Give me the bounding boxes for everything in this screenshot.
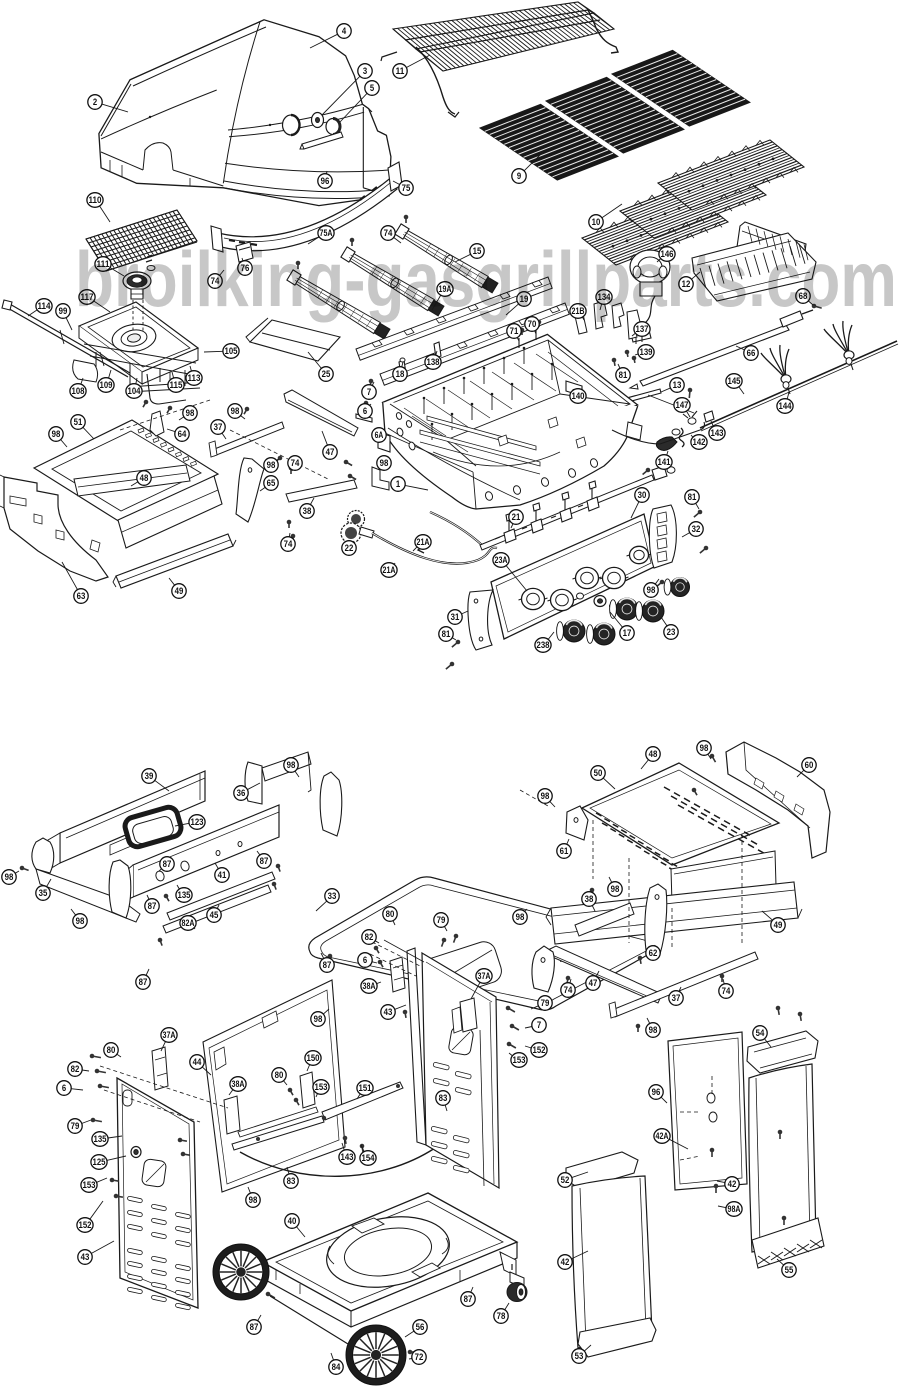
svg-text:1: 1 — [396, 479, 401, 490]
svg-text:64: 64 — [178, 429, 187, 440]
svg-text:74: 74 — [291, 458, 300, 469]
svg-text:21A: 21A — [417, 537, 430, 548]
svg-text:52: 52 — [561, 1175, 570, 1186]
svg-text:47: 47 — [326, 447, 335, 458]
svg-text:114: 114 — [38, 301, 52, 312]
svg-text:9: 9 — [517, 171, 521, 182]
svg-text:5: 5 — [370, 83, 375, 94]
svg-text:74: 74 — [211, 276, 220, 287]
svg-text:11: 11 — [396, 66, 405, 77]
svg-text:63: 63 — [77, 591, 86, 602]
svg-text:104: 104 — [128, 386, 142, 397]
svg-text:76: 76 — [241, 263, 250, 274]
svg-text:98: 98 — [231, 406, 240, 417]
svg-text:98: 98 — [76, 916, 85, 927]
svg-text:87: 87 — [163, 859, 172, 870]
svg-text:61: 61 — [560, 846, 569, 857]
svg-text:113: 113 — [188, 373, 201, 384]
svg-text:87: 87 — [260, 856, 269, 867]
svg-text:98: 98 — [267, 460, 276, 471]
svg-text:153: 153 — [315, 1082, 328, 1093]
svg-text:37A: 37A — [478, 971, 491, 982]
svg-text:17: 17 — [623, 628, 632, 639]
svg-text:4: 4 — [342, 26, 347, 37]
svg-text:79: 79 — [437, 915, 446, 926]
svg-text:143: 143 — [341, 1152, 354, 1163]
svg-text:96: 96 — [652, 1087, 661, 1098]
svg-text:139: 139 — [640, 347, 653, 358]
svg-text:56: 56 — [416, 1322, 425, 1333]
svg-text:138: 138 — [427, 357, 440, 368]
svg-text:98: 98 — [700, 743, 709, 754]
svg-text:98A: 98A — [728, 1204, 741, 1215]
svg-text:19A: 19A — [439, 284, 452, 295]
svg-text:98: 98 — [186, 408, 195, 419]
svg-text:40: 40 — [288, 1216, 297, 1227]
svg-text:54: 54 — [756, 1028, 765, 1039]
svg-text:150: 150 — [307, 1053, 320, 1064]
svg-text:98: 98 — [5, 872, 14, 883]
svg-text:151: 151 — [359, 1083, 373, 1094]
svg-text:141: 141 — [658, 457, 672, 468]
svg-text:33: 33 — [328, 891, 337, 902]
svg-text:30: 30 — [638, 490, 647, 501]
svg-text:115: 115 — [170, 380, 184, 391]
svg-text:152: 152 — [79, 1220, 92, 1231]
svg-text:74: 74 — [722, 986, 731, 997]
svg-text:82: 82 — [71, 1064, 80, 1075]
svg-text:71: 71 — [510, 326, 519, 337]
svg-text:96: 96 — [321, 176, 330, 187]
svg-text:78: 78 — [497, 1311, 506, 1322]
svg-text:6A: 6A — [375, 430, 384, 441]
svg-text:38: 38 — [585, 894, 594, 905]
svg-text:44: 44 — [193, 1057, 202, 1068]
svg-text:45: 45 — [210, 910, 219, 921]
svg-text:37A: 37A — [163, 1030, 176, 1041]
svg-text:70: 70 — [528, 319, 537, 330]
svg-text:111: 111 — [97, 259, 111, 270]
svg-text:146: 146 — [661, 249, 674, 260]
svg-text:65: 65 — [267, 478, 276, 489]
svg-text:74: 74 — [384, 228, 393, 239]
svg-text:51: 51 — [74, 417, 83, 428]
svg-text:22: 22 — [345, 543, 354, 554]
svg-text:153: 153 — [513, 1055, 526, 1066]
svg-text:15: 15 — [473, 246, 482, 257]
svg-text:80: 80 — [107, 1045, 116, 1056]
svg-text:82A: 82A — [182, 918, 195, 929]
svg-text:38: 38 — [303, 506, 312, 517]
svg-text:7: 7 — [537, 1020, 541, 1031]
svg-text:41: 41 — [218, 870, 227, 881]
svg-text:7: 7 — [367, 387, 371, 398]
svg-text:48: 48 — [140, 473, 149, 484]
svg-text:80: 80 — [275, 1070, 284, 1081]
svg-text:108: 108 — [72, 386, 85, 397]
svg-text:98: 98 — [249, 1195, 258, 1206]
svg-text:79: 79 — [541, 998, 550, 1009]
svg-text:55: 55 — [785, 1265, 794, 1276]
svg-text:21: 21 — [512, 512, 521, 523]
svg-text:37: 37 — [672, 993, 681, 1004]
svg-text:87: 87 — [139, 977, 148, 988]
svg-text:152: 152 — [533, 1045, 546, 1056]
svg-text:98: 98 — [314, 1014, 323, 1025]
svg-text:39: 39 — [145, 771, 154, 782]
svg-text:37: 37 — [214, 422, 223, 433]
svg-text:21B: 21B — [572, 306, 585, 317]
svg-text:98: 98 — [516, 912, 525, 923]
svg-text:62: 62 — [649, 948, 658, 959]
svg-text:49: 49 — [175, 586, 184, 597]
svg-text:38A: 38A — [232, 1079, 245, 1090]
svg-text:6: 6 — [62, 1083, 66, 1094]
svg-text:43: 43 — [384, 1007, 393, 1018]
svg-text:84: 84 — [332, 1362, 341, 1373]
svg-text:82: 82 — [365, 932, 374, 943]
svg-text:32: 32 — [692, 524, 701, 535]
svg-text:109: 109 — [100, 380, 113, 391]
svg-text:87: 87 — [323, 960, 332, 971]
svg-text:105: 105 — [225, 346, 239, 357]
svg-text:6: 6 — [363, 406, 367, 417]
svg-text:154: 154 — [362, 1153, 376, 1164]
svg-text:42: 42 — [728, 1179, 737, 1190]
svg-text:49: 49 — [774, 920, 783, 931]
svg-text:75A: 75A — [320, 228, 333, 239]
svg-text:48: 48 — [649, 749, 658, 760]
svg-text:137: 137 — [636, 324, 649, 335]
svg-text:38A: 38A — [363, 981, 376, 992]
svg-text:98: 98 — [287, 760, 296, 771]
svg-text:53: 53 — [575, 1351, 584, 1362]
svg-text:87: 87 — [464, 1294, 473, 1305]
svg-text:6: 6 — [363, 955, 367, 966]
svg-text:83: 83 — [439, 1093, 448, 1104]
svg-text:75: 75 — [402, 183, 411, 194]
svg-text:81: 81 — [619, 370, 628, 381]
svg-text:125: 125 — [93, 1157, 107, 1168]
svg-text:153: 153 — [83, 1180, 96, 1191]
svg-text:98: 98 — [380, 458, 389, 469]
svg-text:140: 140 — [572, 391, 585, 402]
svg-text:80: 80 — [386, 909, 395, 920]
svg-text:99: 99 — [59, 306, 68, 317]
svg-text:68: 68 — [799, 291, 808, 302]
svg-text:135: 135 — [178, 890, 192, 901]
svg-text:79: 79 — [71, 1121, 80, 1132]
svg-text:81: 81 — [442, 629, 451, 640]
svg-text:98: 98 — [649, 1025, 658, 1036]
svg-text:35: 35 — [39, 888, 48, 899]
svg-text:74: 74 — [564, 985, 573, 996]
svg-text:36: 36 — [237, 788, 246, 799]
svg-text:12: 12 — [682, 279, 691, 290]
svg-text:47: 47 — [589, 978, 598, 989]
svg-text:25: 25 — [322, 369, 331, 380]
svg-text:10: 10 — [592, 217, 601, 228]
svg-text:18: 18 — [396, 369, 405, 380]
svg-text:42A: 42A — [656, 1131, 669, 1142]
svg-text:98: 98 — [647, 585, 656, 596]
svg-text:87: 87 — [148, 901, 157, 912]
svg-text:83: 83 — [287, 1176, 296, 1187]
svg-text:3: 3 — [363, 66, 367, 77]
svg-text:31: 31 — [451, 612, 460, 623]
svg-text:2: 2 — [93, 97, 97, 108]
svg-text:13: 13 — [673, 380, 682, 391]
svg-text:23: 23 — [667, 627, 676, 638]
svg-text:60: 60 — [805, 760, 814, 771]
svg-text:142: 142 — [693, 437, 706, 448]
svg-text:144: 144 — [779, 401, 793, 412]
svg-text:72: 72 — [415, 1352, 424, 1363]
svg-text:81: 81 — [688, 492, 697, 503]
svg-text:23A: 23A — [495, 555, 508, 566]
svg-text:134: 134 — [598, 292, 612, 303]
svg-text:87: 87 — [250, 1322, 259, 1333]
svg-text:98: 98 — [541, 791, 550, 802]
svg-text:110: 110 — [89, 195, 102, 206]
svg-text:238: 238 — [537, 640, 550, 651]
svg-text:98: 98 — [611, 884, 620, 895]
svg-text:98: 98 — [52, 429, 61, 440]
svg-text:135: 135 — [94, 1134, 108, 1145]
svg-text:43: 43 — [81, 1252, 90, 1263]
svg-text:21A: 21A — [383, 565, 396, 576]
svg-text:66: 66 — [747, 348, 756, 359]
svg-text:50: 50 — [594, 768, 603, 779]
svg-text:145: 145 — [728, 376, 742, 387]
svg-text:147: 147 — [676, 400, 689, 411]
svg-text:123: 123 — [191, 817, 204, 828]
svg-text:74: 74 — [284, 539, 293, 550]
svg-text:19: 19 — [520, 294, 529, 305]
svg-text:117: 117 — [81, 292, 94, 303]
svg-text:42: 42 — [561, 1257, 570, 1268]
svg-text:143: 143 — [711, 428, 724, 439]
